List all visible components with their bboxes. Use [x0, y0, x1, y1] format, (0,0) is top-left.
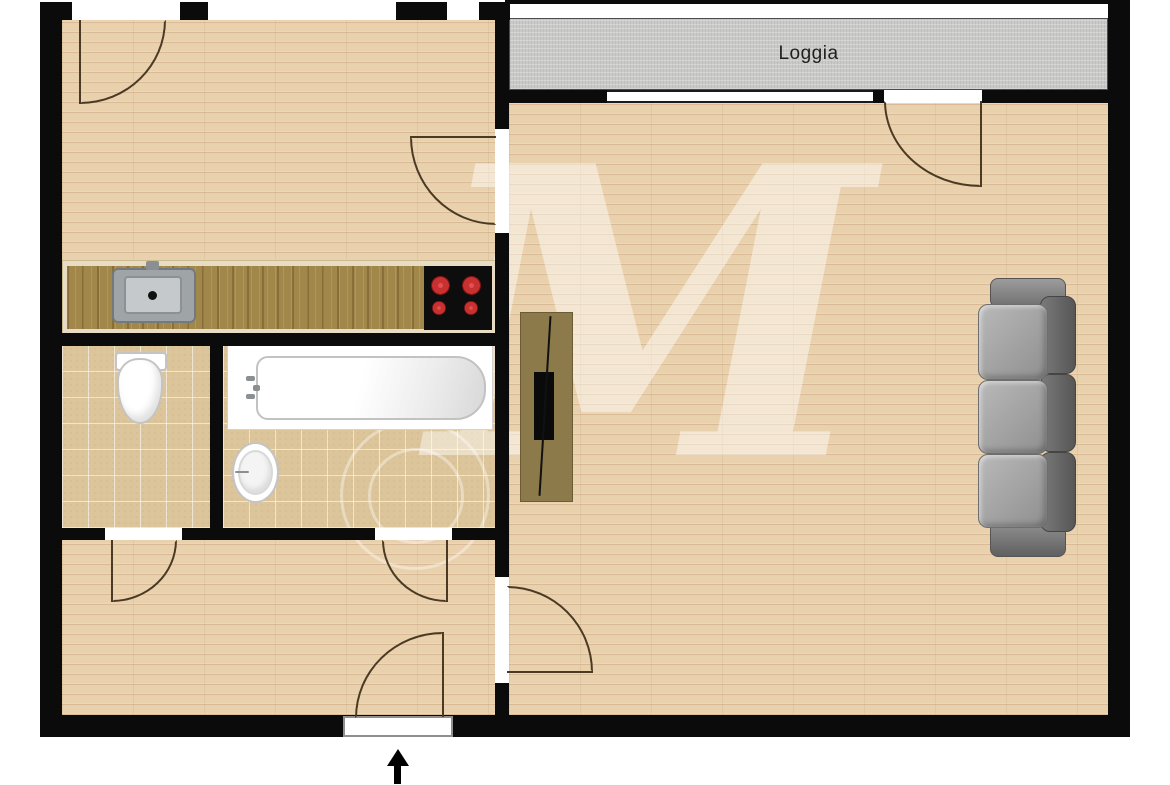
- loggia-outer-line: [505, 0, 1130, 4]
- stove: [424, 266, 492, 330]
- wall-left: [40, 2, 62, 737]
- sofa-seat-2: [978, 380, 1048, 454]
- kitchen-sink-drain: [148, 291, 157, 300]
- kitchen-window: [208, 2, 396, 20]
- bathtub-spout: [253, 385, 260, 391]
- kitchen-living-door-opening: [495, 129, 509, 233]
- wall-kitchen-bath: [40, 333, 496, 346]
- burner-bottom-left: [432, 301, 446, 315]
- wall-wc-bath-divider: [210, 346, 223, 540]
- entrance-arrow-shaft: [394, 764, 401, 784]
- bath-door-opening: [375, 528, 452, 540]
- wc-door-opening: [105, 528, 182, 540]
- bathtub-tap-bottom: [246, 394, 255, 399]
- bathtub-basin: [256, 356, 486, 420]
- kitchen-faucet: [146, 261, 159, 270]
- entrance-door-opening: [343, 716, 453, 737]
- floor-plan-canvas: Loggia M: [0, 0, 1170, 785]
- loggia-area: Loggia: [509, 18, 1108, 90]
- sofa-seat-3: [978, 454, 1048, 528]
- wash-basin-faucet: [235, 471, 249, 473]
- burner-top-left: [431, 276, 450, 295]
- living-room-window: [607, 90, 873, 103]
- loggia-label: Loggia: [778, 43, 838, 65]
- wall-right: [1108, 0, 1130, 737]
- wall-bottom: [40, 715, 1130, 737]
- burner-bottom-right: [464, 301, 478, 315]
- loggia-railing-band: [509, 4, 1108, 18]
- bathtub-tap-top: [246, 376, 255, 381]
- kitchen-entry-opening: [72, 2, 180, 20]
- sofa-seat-1: [978, 304, 1048, 380]
- kitchen-window-small: [447, 2, 479, 20]
- burner-top-right: [462, 276, 481, 295]
